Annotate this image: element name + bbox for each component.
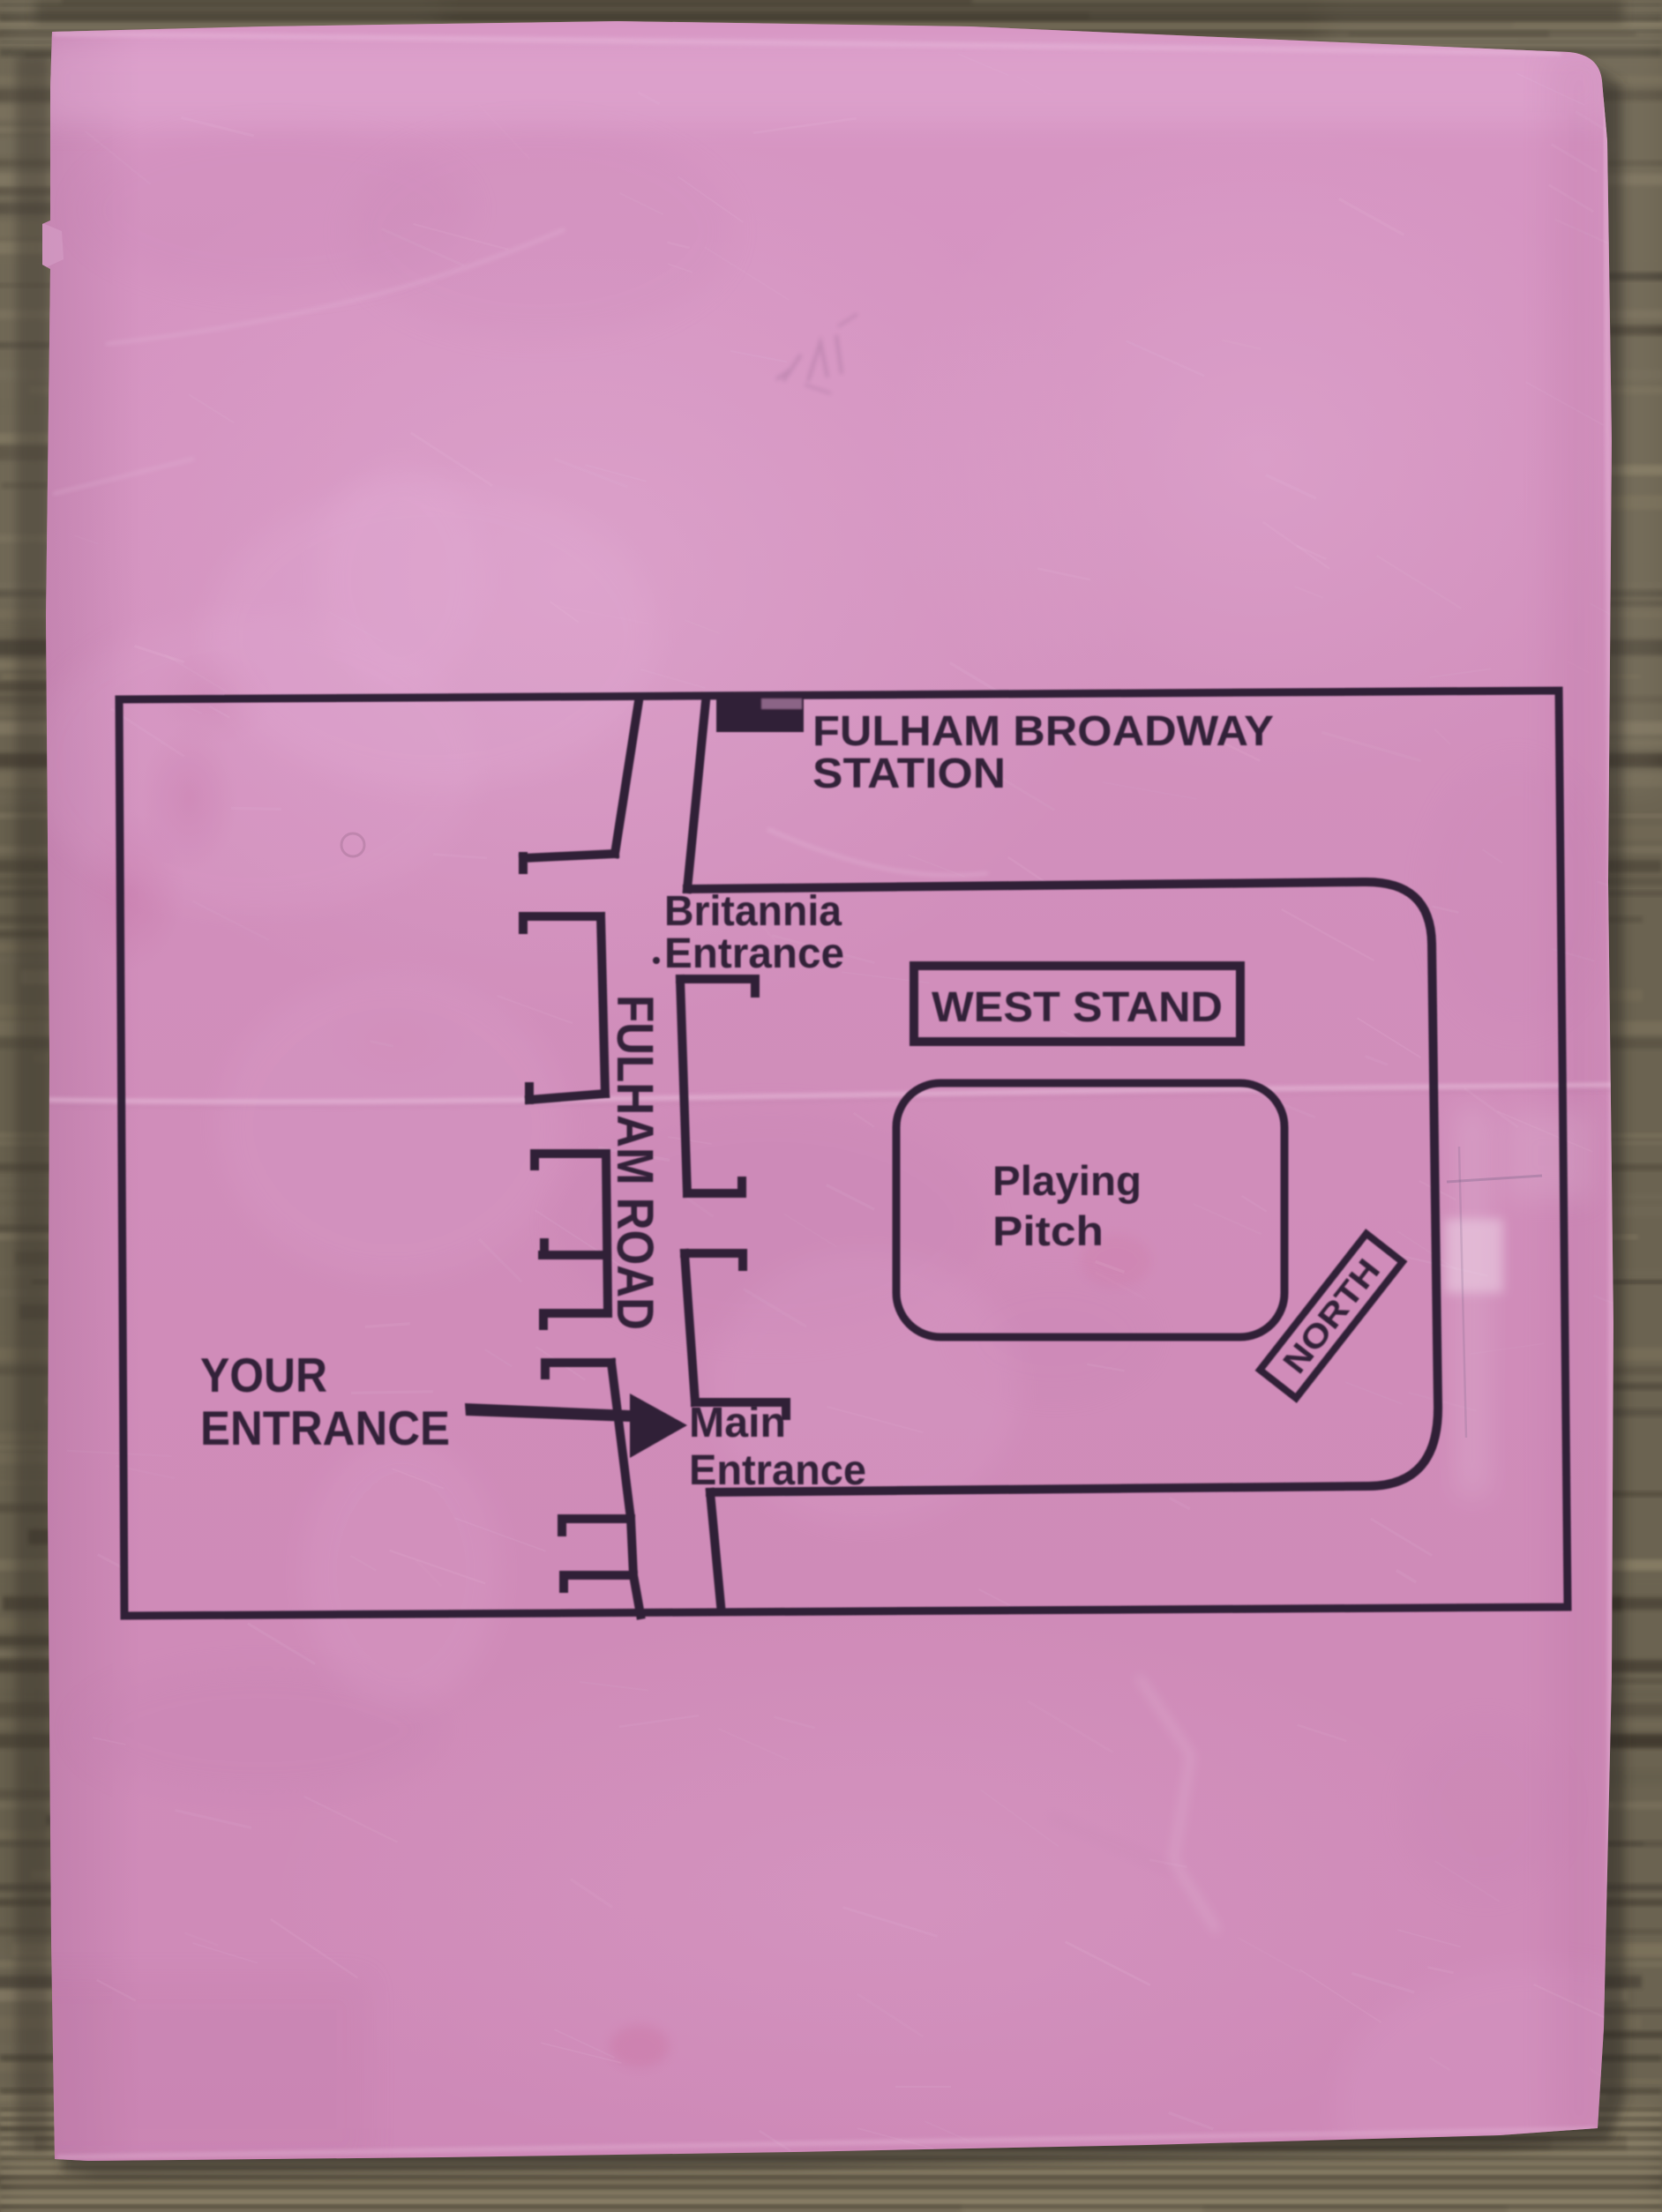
- svg-text:FULHAM BROADWAY: FULHAM BROADWAY: [812, 708, 1274, 755]
- svg-text:Entrance: Entrance: [689, 1447, 866, 1494]
- svg-text:YOUR: YOUR: [200, 1348, 327, 1402]
- svg-text:Entrance: Entrance: [664, 930, 844, 977]
- svg-text:FULHAM ROAD: FULHAM ROAD: [606, 995, 663, 1330]
- svg-text:ENTRANCE: ENTRANCE: [200, 1401, 450, 1455]
- svg-text:Pitch: Pitch: [992, 1207, 1104, 1254]
- svg-text:WEST STAND: WEST STAND: [932, 984, 1223, 1031]
- svg-text:Playing: Playing: [992, 1157, 1142, 1204]
- svg-text:Britannia: Britannia: [664, 888, 842, 935]
- svg-text:STATION: STATION: [812, 751, 1006, 797]
- svg-text:Main: Main: [689, 1400, 786, 1446]
